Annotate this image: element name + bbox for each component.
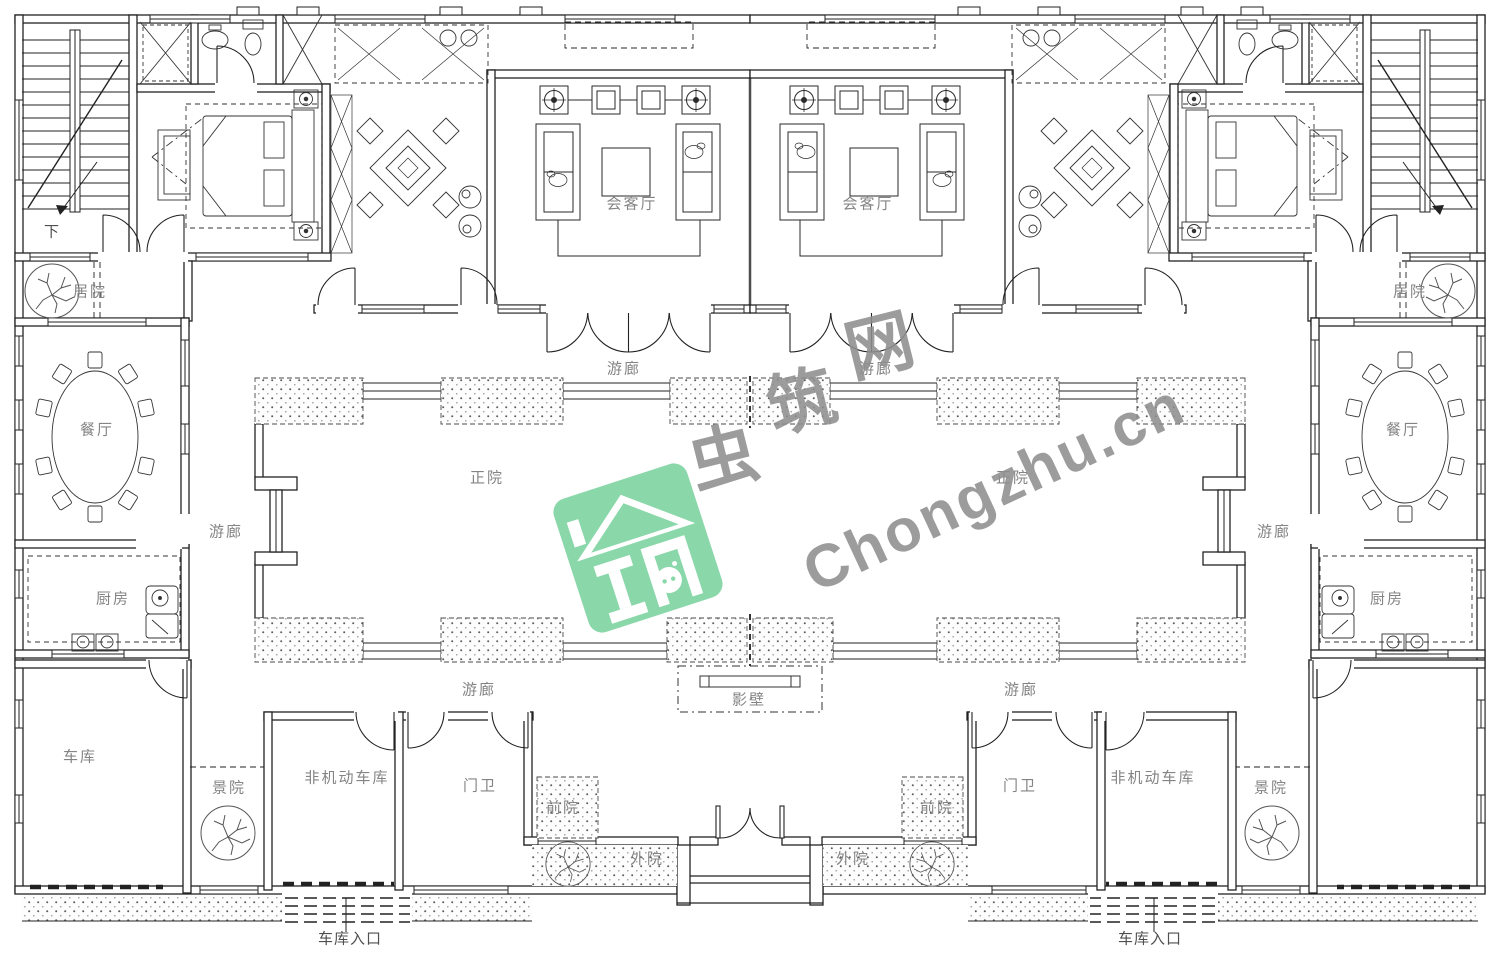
dining-kitchen-furniture (28, 352, 180, 651)
floor-plan-page: 会客厅会客厅下居院居院游廊游廊游廊游廊游廊游廊正院正院餐厅餐厅厨房厨房车库非机动… (0, 0, 1500, 957)
staircase (22, 30, 129, 215)
screen-wall-group (678, 666, 822, 712)
reception-hall-furniture (536, 22, 720, 256)
tea-room-furniture (331, 25, 488, 253)
trees-group (25, 264, 590, 886)
garage-entry-left-marks (282, 893, 412, 932)
